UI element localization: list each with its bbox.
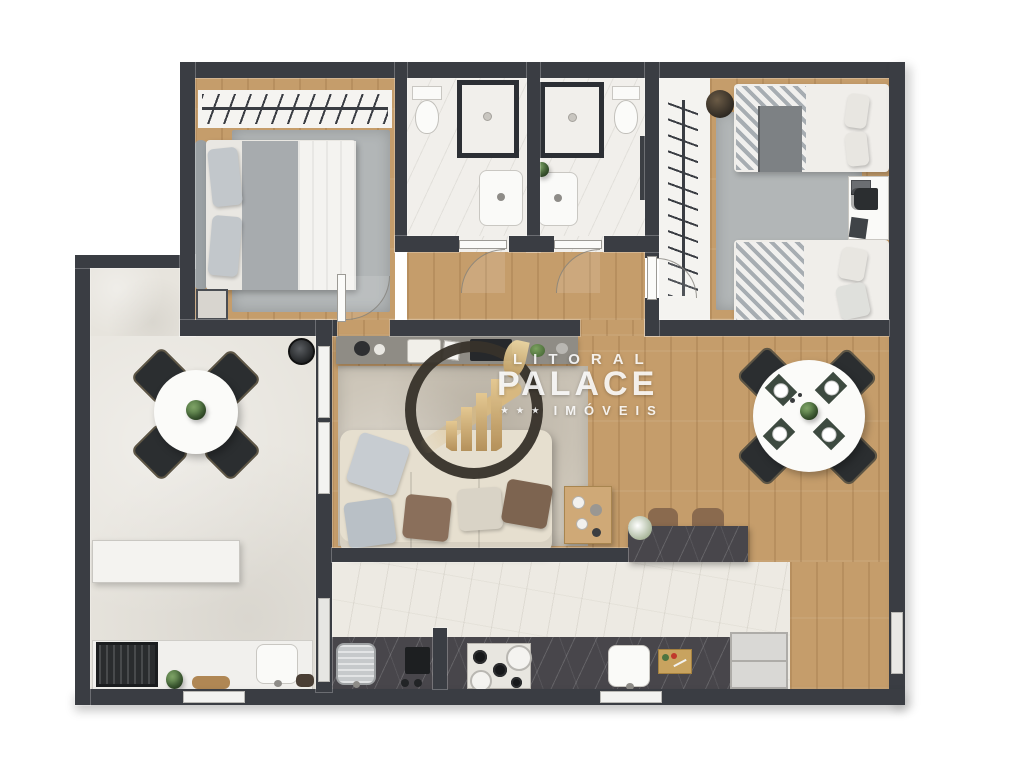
bedroom-2-desk-chair (854, 188, 878, 210)
island-stool-1 (648, 508, 678, 528)
terrace-window (183, 691, 245, 703)
kitchen-sink (608, 645, 650, 687)
cutting-board (658, 649, 692, 674)
cooktop-burner-3 (511, 677, 522, 688)
watermark-imoveis-text: IMÓVEIS (554, 403, 664, 418)
wall-mid-b (390, 320, 580, 336)
wall-clock (288, 338, 315, 365)
knife (673, 659, 686, 667)
wall-left (75, 255, 90, 705)
coffee-table (564, 486, 612, 544)
hallway-floor (407, 252, 645, 320)
decor-plate-dark (354, 341, 370, 356)
bread-board (192, 676, 230, 689)
bathroom-1-toilet (415, 100, 439, 134)
master-bedroom-door (337, 274, 346, 322)
master-closet-rail-bar (202, 107, 388, 110)
wall-master-left (180, 62, 195, 336)
vegetable-red (671, 653, 677, 659)
hallway-passage-floor (580, 320, 645, 336)
wall-mid-a (180, 320, 337, 336)
bedroom-2-bed-2-pillow-1 (837, 246, 868, 282)
wall-master-bath1 (395, 62, 407, 252)
oven-knob-1 (401, 679, 409, 687)
master-bedroom-bench (196, 289, 228, 320)
sofa-pillow-4 (457, 487, 504, 532)
decor-plate-light (374, 344, 385, 355)
watermark: LITORAL PALACE ★ ★ ★ IMÓVEIS (405, 339, 735, 459)
coffee-table-cup-1 (572, 496, 585, 509)
kitchen-window (600, 691, 662, 703)
entry-door (891, 612, 903, 674)
oven (405, 647, 430, 674)
bathroom-1-toilet-tank (412, 86, 442, 100)
wall-bath-bottom-3 (604, 236, 659, 252)
terrace-table-centerpiece (186, 400, 206, 420)
wall-living-kitchen (332, 548, 628, 562)
terrace-sink-faucet (274, 680, 282, 687)
wall-right (889, 62, 905, 705)
dining-table-salt (790, 398, 795, 403)
terrace-sink (256, 644, 298, 684)
laundry-faucet (353, 681, 360, 688)
entry-floor-strip (790, 562, 889, 689)
bathroom-1-shower-drain (483, 112, 492, 121)
terrace-bar-counter (92, 540, 240, 583)
bedroom-2-bed-1-pillow-2 (844, 131, 869, 167)
coffee-table-cup-2 (590, 504, 602, 516)
island-flower-vase (628, 516, 652, 540)
cooktop-burner-2 (493, 663, 507, 677)
watermark-imoveis: ★ ★ ★ IMÓVEIS (501, 403, 664, 418)
wall-mid-c (645, 320, 889, 336)
bedroom-2-bed-2-chevron-blanket (736, 242, 804, 324)
living-terrace-window-1 (318, 346, 330, 418)
dining-table-pepper (798, 393, 802, 397)
bbq-grill (96, 642, 158, 687)
wall-bath-bottom-2 (509, 236, 554, 252)
living-terrace-window-2 (318, 422, 330, 494)
fridge-door-seam (732, 660, 786, 662)
island-stool-2 (692, 508, 724, 528)
bathroom-2-door (554, 240, 602, 249)
bathroom-1-faucet (497, 193, 505, 201)
coffee-table-cup-3 (576, 518, 588, 530)
wall-terrace-top (75, 255, 195, 268)
cooktop-burner-1 (473, 650, 487, 664)
terrace-floor-upper (90, 268, 180, 336)
floor-plan-canvas: LITORAL PALACE ★ ★ ★ IMÓVEIS (0, 0, 1024, 768)
terrace-counter-plant (166, 670, 183, 689)
wall-bath2-closet-upper (645, 62, 659, 258)
sofa-pillow-5 (501, 478, 554, 529)
master-bed-blanket (242, 141, 300, 290)
fridge (730, 632, 788, 689)
wall-bath1-bath2 (527, 62, 540, 252)
wall-top (180, 62, 905, 78)
bathroom-2-shower-drain (568, 113, 577, 122)
wall-bath-bottom-1 (395, 236, 459, 252)
logo-bar (476, 393, 487, 451)
terrace-sliding-door (318, 598, 330, 682)
cooktop-pot-1 (506, 645, 532, 671)
oven-knob-2 (414, 679, 422, 687)
master-bed-duvet (298, 141, 356, 290)
bathroom-1-door (459, 240, 507, 249)
wall-bath2-closet-lower (645, 298, 659, 336)
bedroom-2-basket (706, 90, 734, 118)
watermark-palace: PALACE (497, 365, 658, 404)
bedroom-2-bed-1-pillow-1 (844, 93, 871, 130)
dining-table-centerpiece (800, 402, 818, 420)
laundry-sink (336, 643, 376, 685)
master-bed-pillow-1 (207, 147, 243, 208)
sofa-pillow-2 (343, 497, 397, 549)
bedroom-2-notebook (849, 217, 869, 239)
sofa-pillow-3 (402, 494, 452, 543)
bathroom-2-toilet-tank (612, 86, 640, 100)
bathroom-2-faucet (554, 194, 562, 202)
coffee-table-cup-4 (592, 528, 601, 537)
bathroom-2-toilet (614, 100, 638, 134)
master-bed-pillow-2 (207, 215, 242, 277)
watermark-stars: ★ ★ ★ (501, 406, 542, 415)
bedroom-2-door (647, 256, 657, 300)
logo-bar (446, 421, 457, 451)
vegetable-green (662, 654, 669, 661)
logo-bar (461, 407, 472, 451)
wall-kitchen-divider (433, 628, 447, 689)
master-door-threshold (337, 320, 390, 336)
terrace-bowl (296, 674, 314, 687)
bedroom-2-bed-1-folded-blanket (758, 106, 802, 172)
